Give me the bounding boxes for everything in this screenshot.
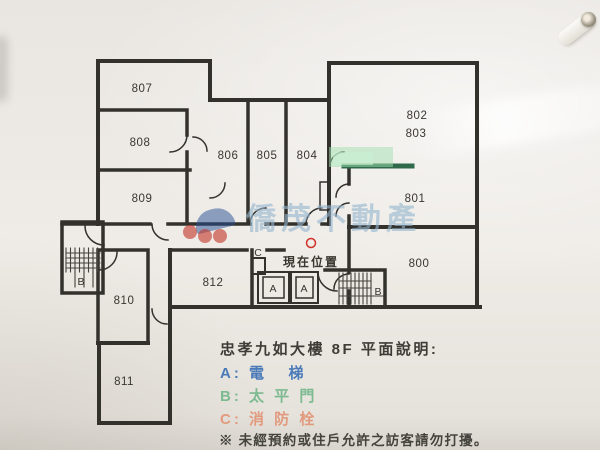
- legend-fire-hydrant-key: C:: [220, 411, 242, 428]
- room-label-807: 807: [132, 83, 153, 95]
- room-label-803: 803: [406, 128, 427, 140]
- room-label-801: 801: [405, 193, 426, 205]
- plan-title: 忠孝九如大樓 8F 平面說明:: [220, 338, 520, 359]
- elevator-label-2: A: [300, 283, 307, 295]
- room-label-800: 800: [409, 258, 430, 270]
- room-label-806: 806: [218, 150, 239, 162]
- floor-plan-sign-photo: 807 808 809 806 805 804 802 803 801 800 …: [0, 0, 600, 450]
- room-label-808: 808: [130, 137, 151, 149]
- room-label-810: 810: [114, 295, 135, 307]
- current-location-dot: [307, 239, 316, 248]
- legend-elevator-label: 電 梯: [249, 365, 307, 382]
- legend-elevator: A: 電 梯: [220, 366, 520, 382]
- elevator-label-1: A: [269, 283, 276, 295]
- legend-fire-hydrant: C: 消 防 栓: [220, 412, 520, 428]
- room-label-802: 802: [407, 110, 428, 122]
- stairwell-right-label: B: [374, 286, 381, 298]
- room-label-804: 804: [297, 150, 318, 162]
- room-label-812: 812: [203, 277, 224, 289]
- legend-elevator-key: A:: [220, 365, 242, 382]
- legend-emergency-exit: B: 太 平 門: [220, 389, 520, 405]
- visitor-notice: ※ 未經預約或住戶允許之訪客請勿打擾。: [219, 429, 489, 449]
- legend-block: 忠孝九如大樓 8F 平面說明: A: 電 梯 B: 太 平 門 C: 消 防 栓: [220, 338, 520, 428]
- current-location-text: 現在位置: [283, 254, 339, 269]
- legend-fire-hydrant-label: 消 防 栓: [249, 411, 317, 428]
- room-label-811: 811: [114, 376, 134, 388]
- legend-emergency-exit-key: B:: [220, 388, 242, 405]
- room-label-805: 805: [257, 150, 278, 162]
- legend-emergency-exit-label: 太 平 門: [249, 388, 317, 405]
- fire-hydrant-label: C: [254, 247, 262, 259]
- room-label-809: 809: [132, 193, 153, 205]
- elevator-boxes: [258, 272, 318, 303]
- stairwell-left-label: B: [77, 276, 84, 288]
- green-highlight-core: [333, 152, 373, 165]
